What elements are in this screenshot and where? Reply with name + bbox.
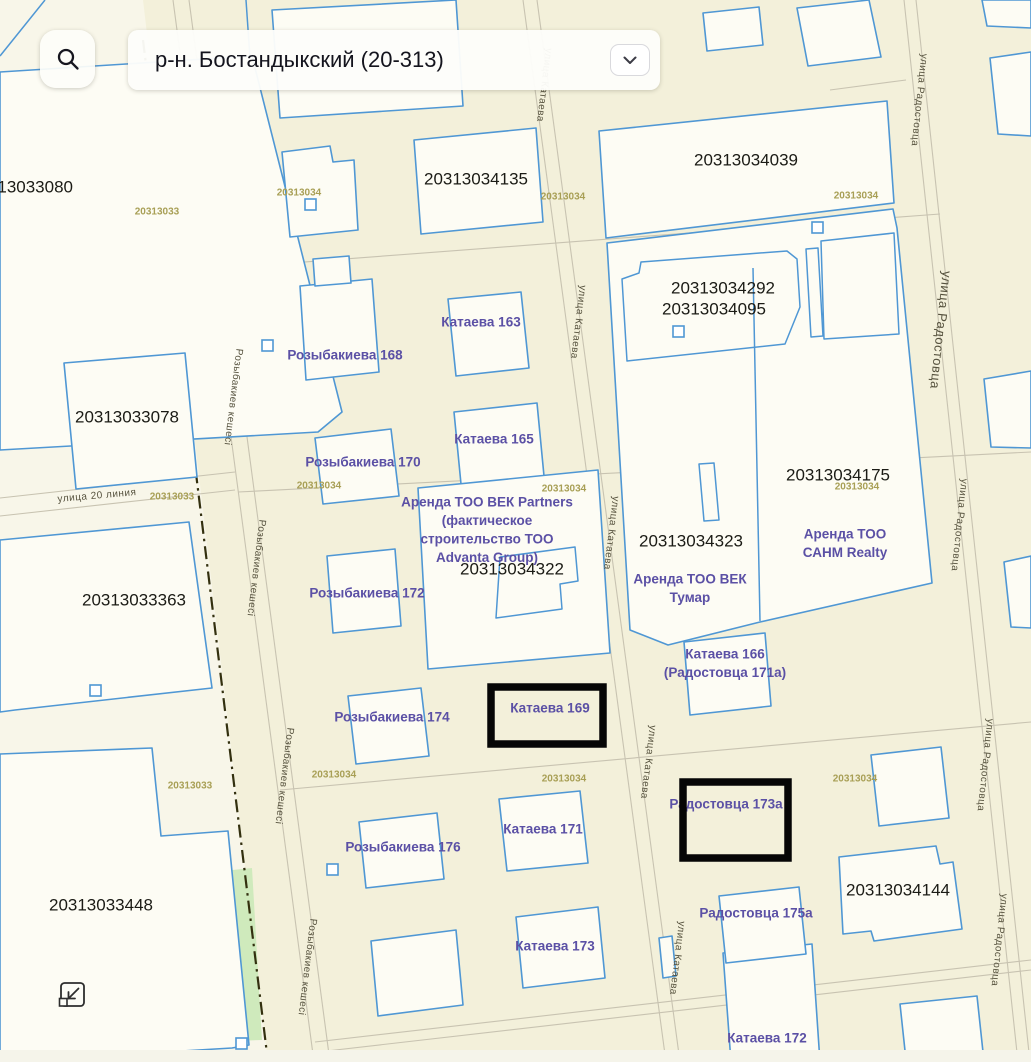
cadastral-map[interactable]: 2031303320313034203130342031303420313033… <box>0 0 1031 1062</box>
quarter-number-label: 20313034 <box>541 192 586 203</box>
cadastral-number-label: 20313034144 <box>846 881 950 900</box>
cadastral-number-label: 20313033363 <box>82 591 186 610</box>
cadastral-number-label: 20313034039 <box>694 151 798 170</box>
cadastral-number-label: 20313034292 <box>671 279 775 298</box>
district-dropdown-button[interactable] <box>610 44 650 76</box>
parcel-outline[interactable] <box>719 887 806 963</box>
chevron-down-icon <box>623 56 637 65</box>
address-label: (Радостовца 171а) <box>664 665 786 680</box>
district-selector[interactable]: р-н. Бостандыкский (20-313) <box>128 30 660 90</box>
collapse-map-button[interactable] <box>55 979 91 1013</box>
parcel-outline[interactable] <box>448 292 529 376</box>
marker-square <box>673 326 684 337</box>
quarter-number-label: 20313034 <box>542 774 587 785</box>
address-label: Катаева 171 <box>503 822 583 837</box>
district-label: р-н. Бостандыкский (20-313) <box>128 47 444 73</box>
cadastral-number-label: 20313033448 <box>49 896 153 915</box>
address-label: Радостовца 175а <box>699 906 813 921</box>
parcel-outline[interactable] <box>797 0 881 66</box>
parcel-outline[interactable] <box>371 930 463 1016</box>
address-label: Катаева 173 <box>515 939 595 954</box>
address-label: Катаева 169 <box>510 701 589 716</box>
marker-square <box>327 864 338 875</box>
address-label: Катаева 172 <box>727 1031 806 1046</box>
parcel-outline[interactable] <box>300 279 379 380</box>
quarter-number-label: 20313034 <box>834 191 879 202</box>
collapse-arrow-icon <box>57 979 89 1011</box>
address-label: Розыбакиева 176 <box>345 840 461 855</box>
marker-square <box>305 199 316 210</box>
address-label: (фактическое <box>442 513 533 528</box>
marker-square <box>262 340 273 351</box>
cadastral-number-label: 20313034323 <box>639 532 743 551</box>
address-label: САНМ Realty <box>803 545 888 560</box>
building-outline <box>821 233 899 339</box>
parcel-outline[interactable] <box>871 747 949 826</box>
quarter-number-label: 20313033 <box>135 207 180 218</box>
cadastral-number-label: 20313033080 <box>0 178 73 197</box>
address-label: Катаева 163 <box>441 315 521 330</box>
address-label: Розыбакиева 170 <box>305 455 420 470</box>
quarter-number-label: 20313033 <box>168 781 213 792</box>
quarter-number-label: 20313033 <box>150 492 195 503</box>
quarter-number-label: 20313034 <box>542 484 587 495</box>
cadastral-number-label: 20313034175 <box>786 466 890 485</box>
address-label: Аренда ТОО <box>804 527 886 542</box>
parcel-outline[interactable] <box>703 7 763 51</box>
search-button[interactable] <box>40 30 95 88</box>
address-label: Аренда ТОО ВЕК Partners <box>401 495 573 510</box>
cadastral-number-label: 20313034095 <box>662 300 766 319</box>
quarter-number-label: 20313034 <box>312 770 357 781</box>
address-label: Катаева 165 <box>454 432 534 447</box>
cadastral-number-label: 20313034135 <box>424 170 528 189</box>
parcel-outline[interactable] <box>982 0 1031 28</box>
address-label: Тумар <box>670 590 711 605</box>
parcel-outline[interactable] <box>984 371 1031 448</box>
quarter-number-label: 20313034 <box>277 188 322 199</box>
address-label: Катаева 166 <box>685 647 765 662</box>
map-edge-strip <box>0 1050 1031 1062</box>
parcel-outline[interactable] <box>990 52 1031 136</box>
quarter-number-label: 20313034 <box>297 481 342 492</box>
address-label: Аренда ТОО ВЕК <box>633 572 747 587</box>
address-label: Advanta Group) <box>436 550 538 565</box>
address-label: строительство ТОО <box>420 532 553 547</box>
search-icon <box>55 46 81 72</box>
marker-square <box>236 1038 247 1049</box>
marker-square <box>90 685 101 696</box>
address-label: Розыбакиева 174 <box>334 710 450 725</box>
cadastral-number-label: 20313033078 <box>75 408 179 427</box>
parcel-outline[interactable] <box>313 256 351 286</box>
address-label: Розыбакиева 168 <box>287 348 403 363</box>
parcel-outline[interactable] <box>348 688 429 764</box>
map-viewer: 2031303320313034203130342031303420313033… <box>0 0 1031 1062</box>
quarter-number-label: 20313034 <box>833 774 878 785</box>
marker-square <box>812 222 823 233</box>
address-label: Розыбакиева 172 <box>309 586 424 601</box>
parcel-outline[interactable] <box>0 522 212 712</box>
